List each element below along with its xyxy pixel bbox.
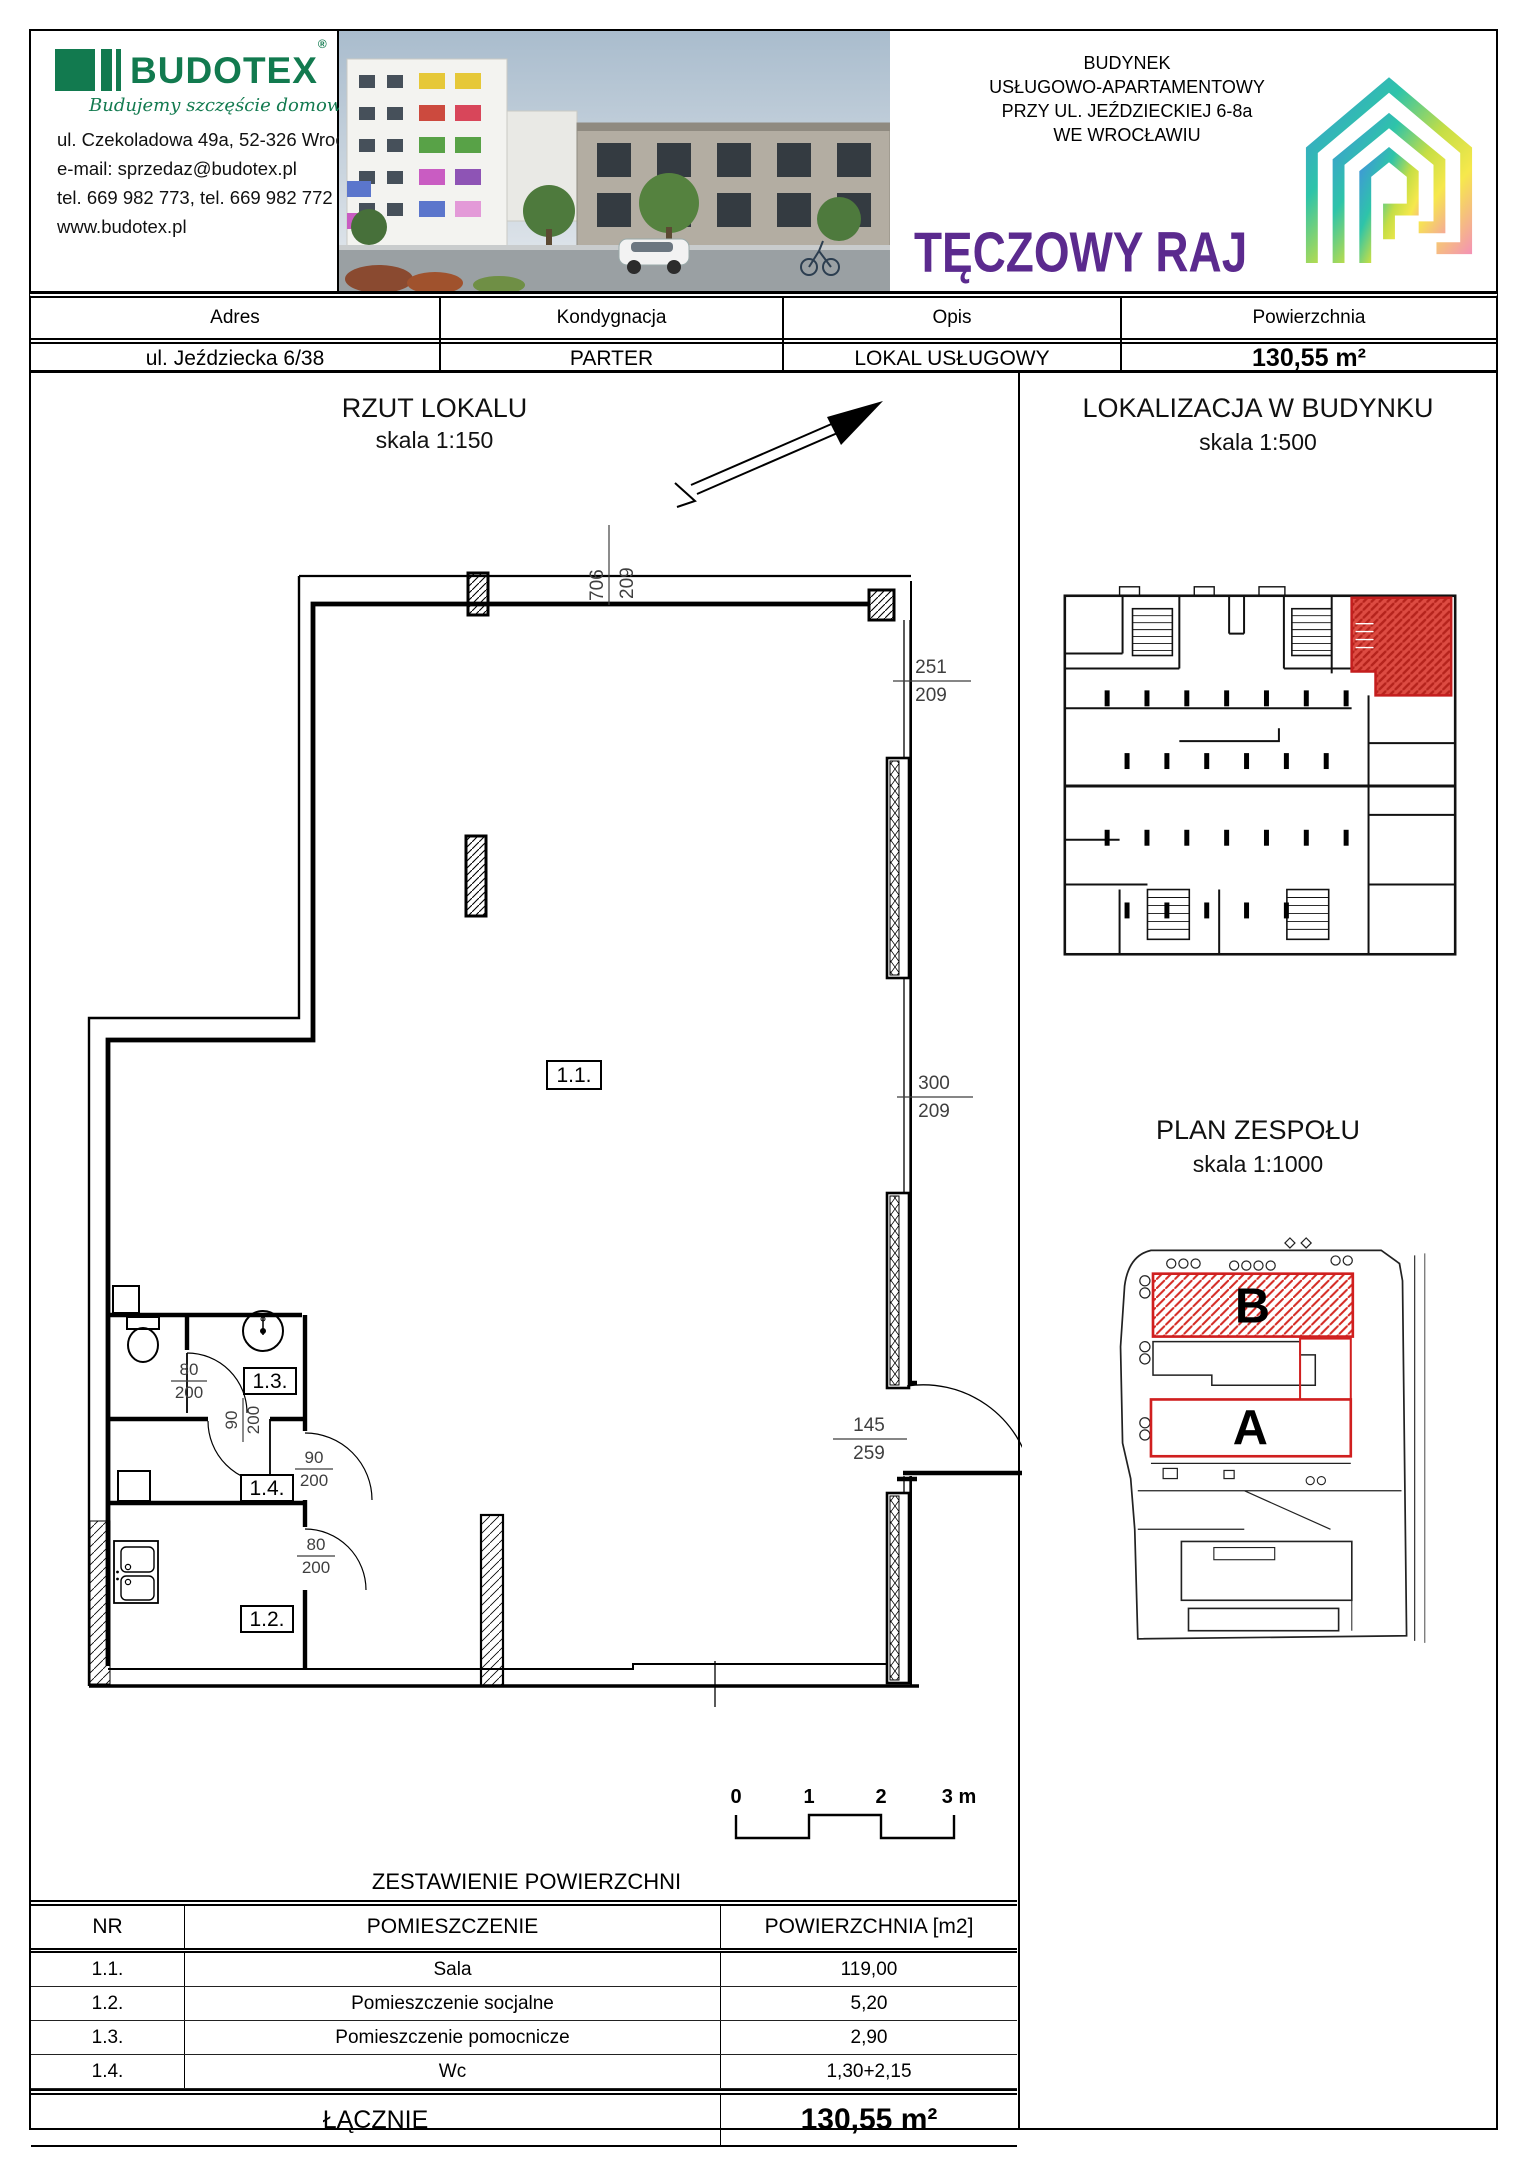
- cell-nr: 1.4.: [31, 2055, 184, 2088]
- project-name: TĘCZOWY RAJ: [914, 220, 1247, 285]
- project-description: BUDYNEK USŁUGOWO-APARTAMENTOWY PRZY UL. …: [892, 51, 1362, 147]
- room-labels: 1.1. 1.3. 1.4. 1.2.: [241, 1061, 601, 1632]
- column-top-icon: [468, 573, 488, 615]
- svg-text:0: 0: [730, 1786, 741, 1808]
- room-label-11: 1.1.: [547, 1061, 601, 1089]
- project-line4: WE WROCŁAWIU: [892, 123, 1362, 147]
- structural-columns: [90, 573, 894, 1686]
- svg-text:2: 2: [875, 1786, 886, 1808]
- svg-text:209: 209: [617, 567, 638, 599]
- offer-sheet: BUDOTEX® Budujemy szczęście domowego ogn…: [0, 0, 1526, 2160]
- header: BUDOTEX® Budujemy szczęście domowego ogn…: [29, 29, 1498, 293]
- column-middle-icon: [466, 836, 486, 916]
- info-label-address: Adres: [31, 298, 439, 344]
- areas-table-title: ZESTAWIENIE POWIERZCHNI: [31, 1869, 1022, 1895]
- svg-text:200: 200: [300, 1471, 328, 1490]
- svg-text:1: 1: [803, 1786, 814, 1808]
- location-panel: LOKALIZACJA W BUDYNKU skala 1:500: [1018, 373, 1496, 2128]
- cell-area: 5,20: [720, 1987, 1017, 2020]
- building-b-label: B: [1235, 1279, 1270, 1333]
- windows: [887, 758, 909, 1683]
- building-render-photo: [339, 31, 890, 291]
- highlighted-unit: [1352, 598, 1452, 696]
- building-a-label: A: [1233, 1401, 1268, 1455]
- cell-nr: 1.3.: [31, 2021, 184, 2054]
- column-top-right-icon: [869, 590, 894, 620]
- svg-text:259: 259: [853, 1443, 885, 1464]
- company-address: ul. Czekoladowa 49a, 52-326 Wrocław: [57, 129, 372, 151]
- areas-header-room: POMIESZCZENIE: [184, 1906, 720, 1948]
- site-title: PLAN ZESPOŁU: [1020, 1115, 1496, 1146]
- areas-header-row: NR POMIESZCZENIE POWIERZCHNIA [m2]: [31, 1906, 1017, 1953]
- budotex-logo-mark-icon: [55, 49, 121, 91]
- dim-door134: 90 200: [222, 1398, 263, 1442]
- floorplan-panel: RZUT LOKALU skala 1:150: [31, 373, 1018, 2128]
- shower-tray-icon: [118, 1471, 150, 1501]
- stair-core-icon: [1287, 890, 1329, 940]
- info-col-area: Powierzchnia 130,55 m²: [1120, 298, 1496, 373]
- window-1-icon: [887, 758, 909, 978]
- cell-room: Sala: [184, 1953, 720, 1986]
- table-row: 1.2. Pomieszczenie socjalne 5,20: [31, 1987, 1017, 2021]
- info-label-area: Powierzchnia: [1122, 298, 1496, 344]
- room-label-12: 1.2.: [241, 1606, 293, 1632]
- info-col-description: Opis LOKAL USŁUGOWY: [782, 298, 1120, 373]
- svg-text:300: 300: [918, 1073, 950, 1094]
- svg-text:90: 90: [222, 1411, 241, 1430]
- dim-top: 706 209: [587, 525, 638, 605]
- sink-icon: [243, 1311, 283, 1351]
- table-row: 1.3. Pomieszczenie pomocnicze 2,90: [31, 2021, 1017, 2055]
- cell-nr: 1.1.: [31, 1953, 184, 1986]
- areas-header-nr: NR: [31, 1906, 184, 1948]
- location-title: LOKALIZACJA W BUDYNKU: [1020, 393, 1496, 424]
- budotex-logo: BUDOTEX®: [55, 47, 328, 93]
- svg-text:200: 200: [302, 1558, 330, 1577]
- info-value-area: 130,55 m²: [1122, 344, 1496, 373]
- scale-bar: 0 1 2 3 m: [730, 1786, 976, 1838]
- company-phone: tel. 669 982 773, tel. 669 982 772: [57, 187, 333, 209]
- areas-header-area: POWIERZCHNIA [m2]: [720, 1906, 1017, 1948]
- dim-door12: 80 200: [297, 1535, 335, 1577]
- dim-right-middle: 300 209: [897, 1073, 973, 1122]
- info-value-description: LOKAL USŁUGOWY: [784, 344, 1120, 373]
- company-block: BUDOTEX® Budujemy szczęście domowego ogn…: [31, 31, 339, 291]
- total-value: 130,55 m²: [720, 2095, 1017, 2145]
- table-row: 1.4. Wc 1,30+2,15: [31, 2055, 1017, 2089]
- dim-entry: 145 259: [833, 1415, 907, 1464]
- building-render-illustration: [339, 31, 890, 291]
- site-scale: skala 1:1000: [1020, 1151, 1496, 1178]
- building-a: A: [1151, 1399, 1351, 1456]
- svg-text:200: 200: [244, 1406, 263, 1434]
- room-label-14: 1.4.: [241, 1475, 293, 1501]
- cell-room: Pomieszczenie socjalne: [184, 1987, 720, 2020]
- entrance-door-icon: [903, 1385, 1022, 1473]
- location-scale: skala 1:500: [1020, 429, 1496, 456]
- floorplan-drawing: 1.1. 1.3. 1.4. 1.2.: [31, 373, 1022, 1848]
- column-bottom-icon: [481, 1515, 503, 1686]
- toilet-icon: [127, 1317, 159, 1362]
- info-label-floor: Kondygnacja: [441, 298, 782, 344]
- company-name: BUDOTEX®: [130, 52, 328, 89]
- building-location-plan: [1020, 578, 1498, 978]
- window-3-icon: [887, 1493, 909, 1683]
- total-label: ŁĄCZNIE: [31, 2095, 720, 2145]
- fixtures: [114, 1311, 283, 1603]
- areas-table: NR POMIESZCZENIE POWIERZCHNIA [m2] 1.1. …: [31, 1900, 1017, 2147]
- unit-info-bar: Adres ul. Jeździecka 6/38 Kondygnacja PA…: [29, 292, 1498, 372]
- info-label-description: Opis: [784, 298, 1120, 344]
- cell-nr: 1.2.: [31, 1987, 184, 2020]
- svg-text:1.1.: 1.1.: [556, 1064, 591, 1087]
- cell-room: Pomieszczenie pomocnicze: [184, 2021, 720, 2054]
- table-row: 1.1. Sala 119,00: [31, 1953, 1017, 1987]
- stair-core-icon: [1292, 609, 1332, 656]
- project-block: BUDYNEK USŁUGOWO-APARTAMENTOWY PRZY UL. …: [892, 31, 1498, 291]
- company-email: e-mail: sprzedaz@budotex.pl: [57, 158, 297, 180]
- party-wall-hatch: [90, 1521, 110, 1684]
- site-plan: B A: [1092, 1225, 1427, 1651]
- svg-text:209: 209: [915, 685, 947, 706]
- areas-total-row: ŁĄCZNIE 130,55 m²: [31, 2089, 1017, 2145]
- window-2-icon: [887, 1193, 909, 1388]
- dim-right-upper: 251 209: [893, 657, 971, 706]
- registered-mark: ®: [318, 37, 328, 51]
- main-area: RZUT LOKALU skala 1:150: [29, 371, 1498, 2130]
- building-b: B: [1153, 1274, 1353, 1337]
- stair-core-icon: [1133, 609, 1173, 656]
- rainbow-house-icon: [1300, 73, 1478, 269]
- svg-text:1.4.: 1.4.: [249, 1477, 284, 1500]
- cell-room: Wc: [184, 2055, 720, 2088]
- svg-text:251: 251: [915, 657, 947, 678]
- svg-text:80: 80: [180, 1360, 199, 1379]
- dimensions: 706 209 251 209 300 209 145: [171, 525, 973, 1707]
- svg-text:1.3.: 1.3.: [252, 1370, 287, 1393]
- svg-text:706: 706: [587, 569, 608, 601]
- dim-door13: 80 200: [171, 1360, 207, 1402]
- svg-text:1.2.: 1.2.: [249, 1608, 284, 1631]
- svg-text:90: 90: [305, 1448, 324, 1467]
- svg-text:200: 200: [175, 1383, 203, 1402]
- info-col-floor: Kondygnacja PARTER: [439, 298, 782, 373]
- room-label-13: 1.3.: [244, 1368, 296, 1394]
- cell-area: 119,00: [720, 1953, 1017, 1986]
- connector-outline: [1300, 1339, 1351, 1400]
- svg-text:145: 145: [853, 1415, 885, 1436]
- cell-area: 2,90: [720, 2021, 1017, 2054]
- project-line2: USŁUGOWO-APARTAMENTOWY: [892, 75, 1362, 99]
- info-value-floor: PARTER: [441, 344, 782, 373]
- project-line3: PRZY UL. JEŹDZIECKIEJ 6-8a: [892, 99, 1362, 123]
- company-website: www.budotex.pl: [57, 216, 187, 238]
- svg-text:80: 80: [307, 1535, 326, 1554]
- svg-text:3 m: 3 m: [942, 1786, 976, 1808]
- info-value-address: ul. Jeździecka 6/38: [31, 344, 439, 373]
- dim-door14: 90 200: [295, 1448, 333, 1490]
- svg-text:209: 209: [918, 1101, 950, 1122]
- project-line1: BUDYNEK: [892, 51, 1362, 75]
- info-col-address: Adres ul. Jeździecka 6/38: [31, 298, 439, 373]
- kitchen-sink-icon: [114, 1541, 158, 1603]
- cell-area: 1,30+2,15: [720, 2055, 1017, 2088]
- north-arrow-icon: [675, 401, 883, 507]
